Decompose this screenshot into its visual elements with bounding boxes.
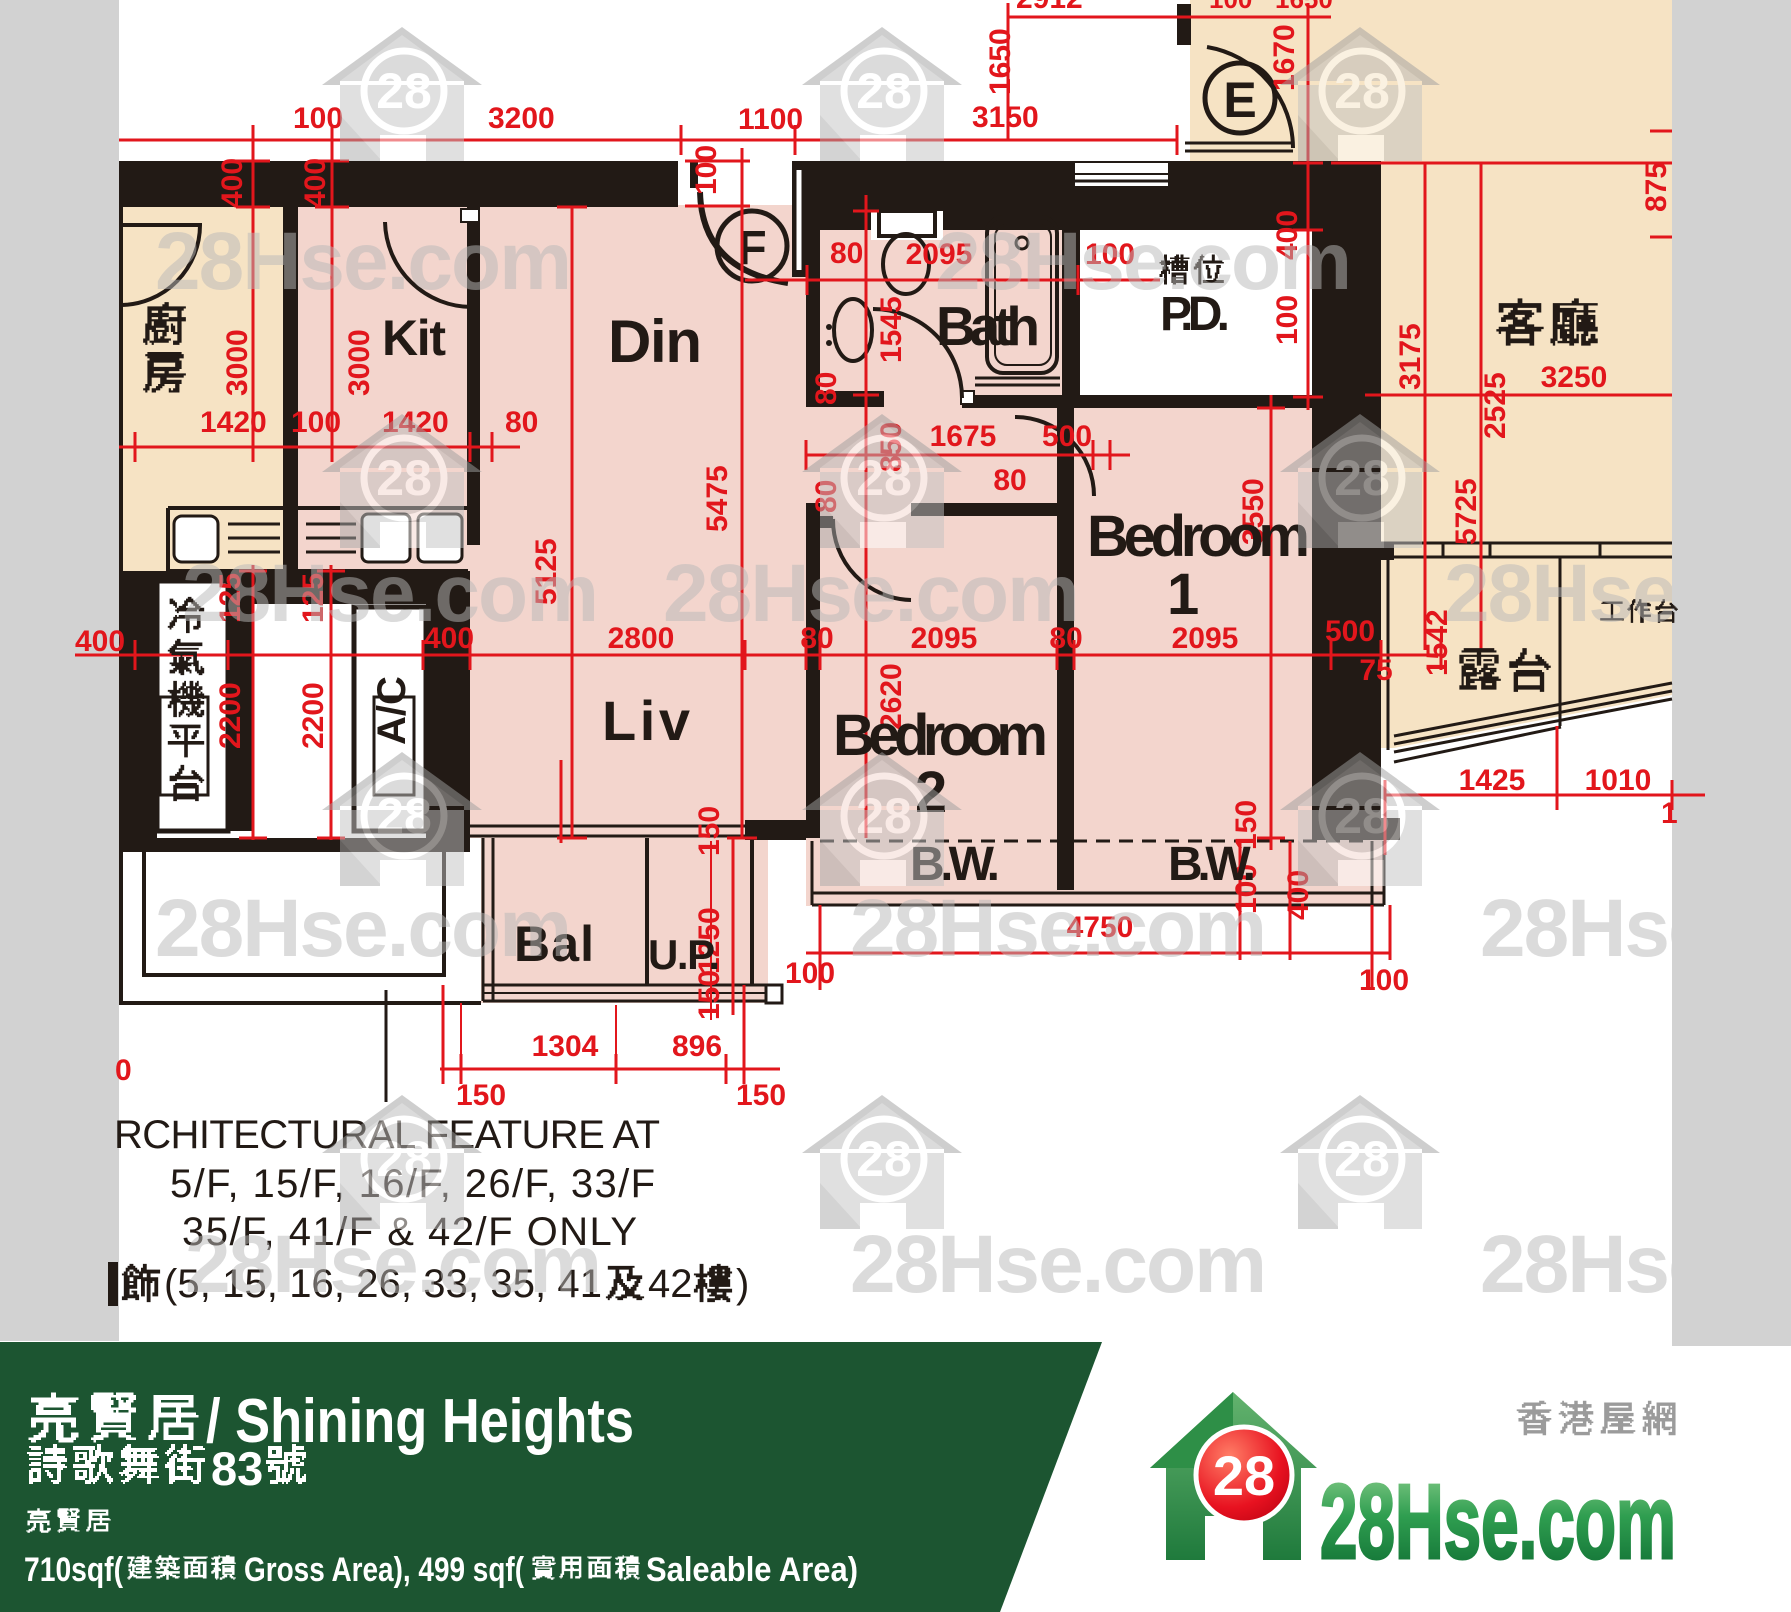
svg-text:3150: 3150 [972, 101, 1039, 134]
svg-text:150: 150 [693, 806, 726, 856]
svg-text:Saleable Area): Saleable Area) [646, 1551, 858, 1589]
svg-text:5475: 5475 [701, 465, 734, 532]
svg-text:1650: 1650 [984, 28, 1017, 95]
svg-text:28: 28 [856, 788, 912, 844]
svg-text:28: 28 [1213, 1444, 1275, 1507]
svg-text:100: 100 [1209, 0, 1252, 14]
svg-text:28Hse.com: 28Hse.com [185, 1219, 600, 1310]
svg-text:3000: 3000 [343, 329, 376, 396]
svg-text:Bedroom: Bedroom [833, 703, 1048, 768]
svg-text:80: 80 [830, 237, 863, 270]
svg-text:Din: Din [608, 308, 702, 375]
svg-text:100: 100 [293, 102, 343, 135]
svg-text:): ) [736, 1262, 749, 1306]
svg-text:28Hse.com: 28Hse.com [850, 883, 1265, 974]
svg-text:75: 75 [1359, 654, 1392, 687]
svg-text:28Hse.com: 28Hse.com [1320, 1463, 1676, 1581]
svg-text:1010: 1010 [1585, 764, 1652, 797]
svg-text:80: 80 [505, 406, 538, 439]
svg-text:2912: 2912 [1016, 0, 1083, 15]
svg-text:83: 83 [211, 1442, 263, 1495]
svg-text:100: 100 [785, 957, 835, 990]
svg-text:1675: 1675 [930, 420, 997, 453]
svg-text:400: 400 [75, 625, 125, 658]
svg-text:28: 28 [1334, 450, 1390, 506]
svg-text:28Hse.com: 28Hse.com [155, 216, 570, 307]
svg-text:3250: 3250 [1541, 361, 1608, 394]
svg-text:1425: 1425 [1459, 764, 1526, 797]
svg-text:Gross Area), 499 sqf(: Gross Area), 499 sqf( [244, 1551, 525, 1589]
svg-text:1650: 1650 [1275, 0, 1333, 14]
svg-text:150: 150 [736, 1079, 786, 1112]
svg-text:500: 500 [1042, 420, 1092, 453]
svg-text:80: 80 [993, 464, 1026, 497]
svg-text:28: 28 [856, 450, 912, 506]
svg-text:28: 28 [376, 63, 432, 119]
svg-text:80: 80 [810, 372, 843, 405]
svg-text:28Hse.com: 28Hse.com [182, 548, 597, 639]
svg-text:3000: 3000 [221, 329, 254, 396]
svg-text:28: 28 [856, 63, 912, 119]
svg-text:U.P.: U.P. [648, 931, 720, 978]
svg-text:150: 150 [456, 1079, 506, 1112]
svg-text:3200: 3200 [488, 102, 555, 135]
svg-text:710sqf(: 710sqf( [24, 1551, 124, 1589]
svg-text:100: 100 [1359, 964, 1409, 997]
svg-text:28Hse.com: 28Hse.com [155, 883, 570, 974]
svg-text:28: 28 [856, 1131, 912, 1187]
svg-text:/ Shining Heights: / Shining Heights [206, 1387, 634, 1456]
svg-text:1100: 1100 [738, 103, 803, 136]
svg-text:28Hse.com: 28Hse.com [850, 1219, 1265, 1310]
svg-text:Kit: Kit [382, 310, 446, 366]
svg-text:2200: 2200 [297, 682, 330, 749]
svg-text:Bedroom: Bedroom [1087, 504, 1310, 569]
svg-text:1: 1 [1167, 562, 1199, 627]
svg-text:Liv: Liv [602, 689, 690, 752]
svg-text:E: E [1223, 72, 1256, 128]
svg-text:1: 1 [1661, 797, 1678, 830]
svg-text:1545: 1545 [875, 296, 908, 363]
svg-text:100: 100 [690, 145, 723, 195]
svg-text:28: 28 [376, 1131, 432, 1187]
svg-text:875: 875 [1640, 162, 1673, 212]
svg-text:500: 500 [1325, 615, 1375, 648]
svg-text:2525: 2525 [1479, 372, 1512, 439]
svg-text:5725: 5725 [1450, 478, 1483, 545]
svg-text:28: 28 [376, 450, 432, 506]
svg-text:28: 28 [1334, 63, 1390, 119]
svg-text:100: 100 [291, 406, 341, 439]
svg-text:400: 400 [216, 158, 249, 208]
svg-text:28: 28 [1334, 788, 1390, 844]
svg-text:42: 42 [648, 1262, 693, 1306]
svg-text:1304: 1304 [532, 1030, 599, 1063]
svg-text:A/C: A/C [370, 676, 414, 745]
svg-text:28Hse.com: 28Hse.com [935, 216, 1350, 307]
svg-text:3175: 3175 [1394, 323, 1427, 390]
svg-text:896: 896 [672, 1030, 722, 1063]
svg-text:2200: 2200 [214, 682, 247, 749]
svg-text:400: 400 [299, 158, 332, 208]
svg-text:28: 28 [1334, 1131, 1390, 1187]
svg-text:1420: 1420 [200, 406, 267, 439]
svg-text:28: 28 [376, 788, 432, 844]
svg-text:0: 0 [115, 1054, 132, 1087]
svg-text:28Hse.com: 28Hse.com [663, 548, 1078, 639]
